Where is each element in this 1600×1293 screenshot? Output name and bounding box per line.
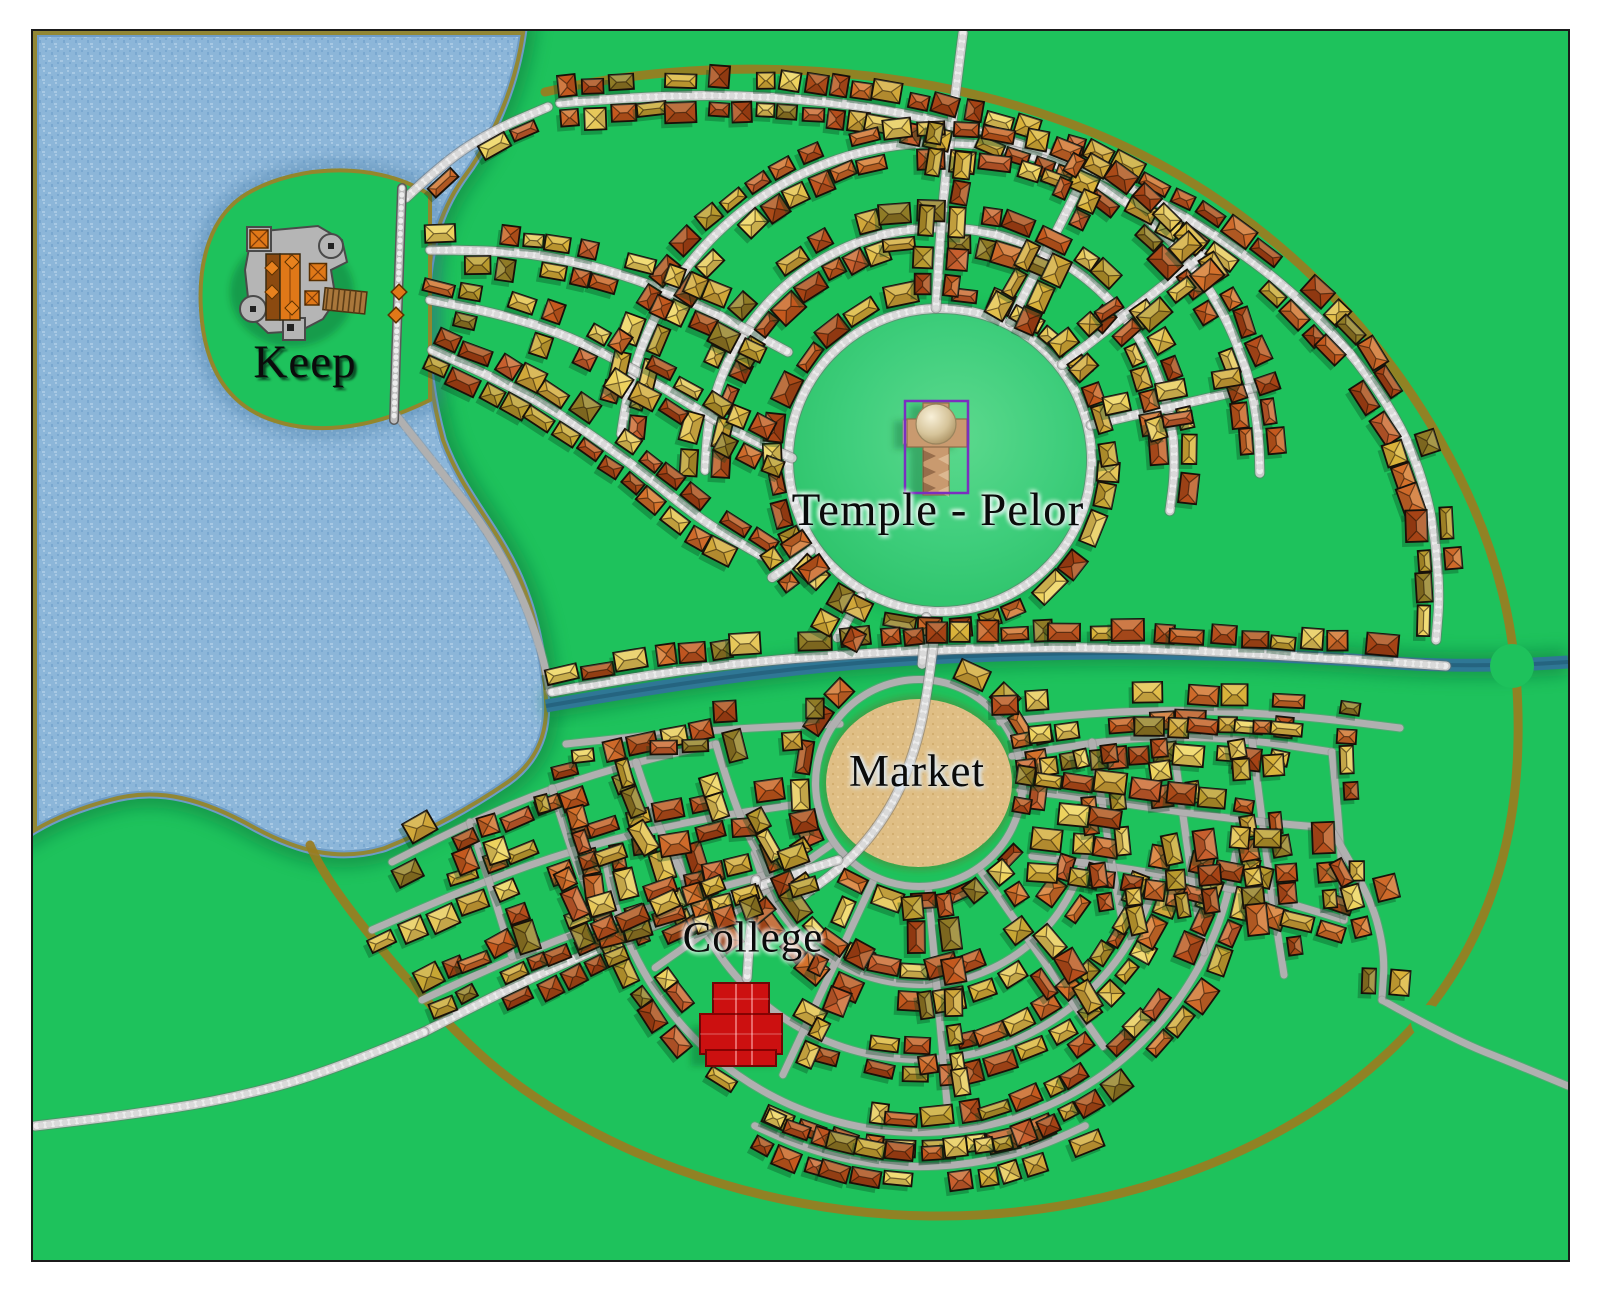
map-frame: Keep Temple - Pelor Market College: [31, 29, 1570, 1262]
fantasy-town-map-page: Keep Temple - Pelor Market College: [0, 0, 1600, 1293]
map-canvas[interactable]: [33, 31, 1568, 1260]
